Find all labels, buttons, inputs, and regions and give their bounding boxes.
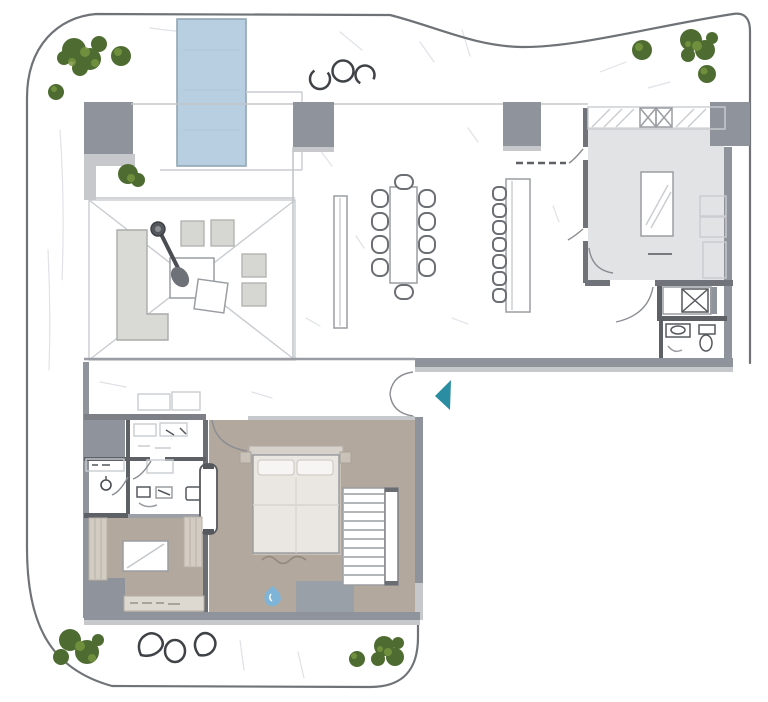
ottoman — [211, 220, 234, 246]
nightstand — [240, 452, 251, 463]
door-arc — [390, 372, 413, 394]
kitchen-cabinets — [588, 107, 725, 129]
door-arc — [390, 394, 413, 416]
floor-plan-canvas — [0, 0, 768, 702]
column — [503, 102, 541, 146]
door-arc — [133, 461, 151, 479]
bar-stool — [493, 221, 506, 234]
tree — [349, 651, 365, 667]
wc — [699, 325, 715, 334]
stone — [352, 62, 378, 88]
opening-arc — [569, 149, 583, 163]
entrance-arrow-icon — [435, 380, 451, 410]
wardrobe — [89, 518, 107, 580]
west-wall — [83, 362, 89, 612]
bar-stool — [493, 272, 506, 285]
dining-chair — [372, 213, 388, 230]
column — [710, 102, 750, 146]
pillow — [258, 460, 294, 475]
bar-counter — [506, 179, 530, 312]
l-shaped-sofa — [117, 230, 168, 340]
dining-chair — [372, 259, 388, 276]
column — [293, 102, 334, 147]
stone — [306, 65, 334, 93]
door-arc — [616, 287, 653, 322]
tree — [698, 65, 716, 83]
bathroom-wall — [585, 280, 610, 286]
column — [84, 419, 125, 458]
tree — [111, 46, 131, 66]
dining-chair — [419, 190, 435, 207]
headboard — [249, 446, 343, 455]
south-wall-left-wing — [84, 612, 420, 620]
bar-stool — [493, 238, 506, 251]
dining-chair — [372, 190, 388, 207]
pillow — [297, 460, 333, 475]
floor-plan-drawing — [0, 0, 768, 702]
bar-stool — [493, 187, 506, 200]
ottoman — [181, 221, 204, 246]
bar-stool — [493, 204, 506, 217]
dining-chair — [395, 175, 413, 189]
dining-chair — [419, 259, 435, 276]
ottoman — [242, 283, 266, 306]
closet-shelf — [134, 424, 156, 436]
tree-group — [53, 629, 104, 665]
hallway — [138, 392, 200, 410]
opening-arc — [568, 229, 583, 240]
dining-chair — [395, 285, 413, 299]
bush — [118, 164, 145, 187]
entry-doors — [390, 372, 413, 416]
column — [84, 102, 133, 154]
entry-wall — [415, 417, 423, 583]
stone — [165, 640, 185, 662]
staircase — [343, 488, 398, 585]
breakfast-bar — [493, 163, 566, 312]
stair-rail — [385, 488, 398, 585]
sliding-door — [200, 464, 217, 534]
stone — [139, 633, 163, 656]
wardrobe — [184, 517, 202, 567]
ottoman — [242, 254, 266, 277]
dining-chair — [419, 213, 435, 230]
tree-group — [57, 36, 107, 76]
bedroom-block-wall — [84, 414, 206, 420]
side-table — [194, 279, 228, 313]
washbasin — [101, 480, 111, 490]
east-wall — [724, 147, 732, 359]
door-arc — [112, 477, 128, 495]
kitchen-wall — [583, 108, 588, 147]
dining-chair — [419, 236, 435, 253]
swimming-pool — [177, 19, 246, 166]
tree — [632, 40, 652, 60]
dining-set — [334, 175, 435, 328]
bar-stool — [493, 255, 506, 268]
dining-chair — [372, 236, 388, 253]
south-wall-right-wing — [415, 358, 733, 367]
bar-stool — [493, 289, 506, 302]
tree-group — [371, 636, 404, 666]
column — [83, 578, 125, 618]
nightstand — [340, 452, 351, 463]
tree — [48, 84, 64, 100]
pergola-lounge — [89, 200, 295, 360]
stone — [333, 61, 354, 82]
tree-group — [680, 29, 718, 62]
dining-table — [390, 187, 417, 283]
stone — [195, 633, 216, 655]
